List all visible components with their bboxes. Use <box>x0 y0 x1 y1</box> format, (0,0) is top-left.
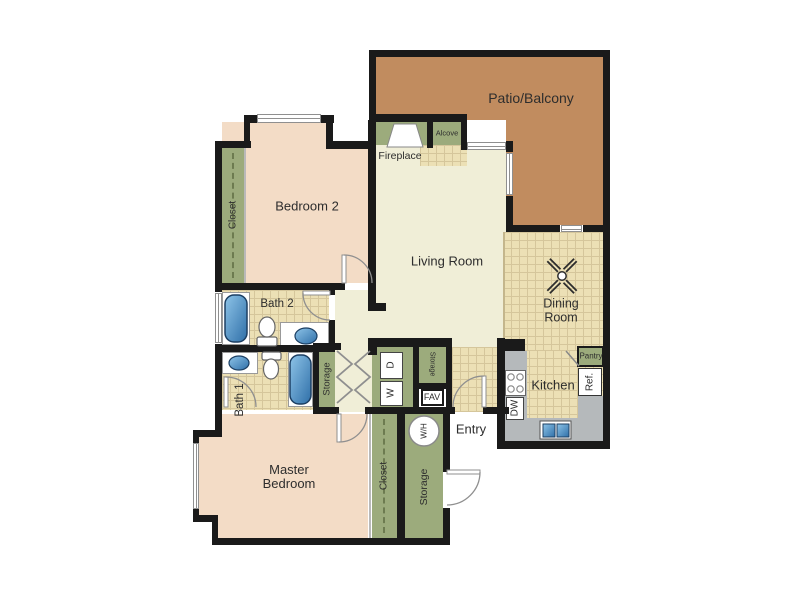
label-patio-balcony: Patio/Balcony <box>488 90 574 106</box>
fireplace-icon <box>387 124 423 147</box>
symbol-overlay <box>0 0 800 600</box>
label-closet-master: Closet <box>379 462 390 490</box>
label-pantry: Pantry <box>579 352 602 361</box>
label-storage-hall: Storage <box>322 362 333 395</box>
label-dining-room: Dining Room <box>536 298 586 325</box>
label-fireplace: Fireplace <box>378 150 421 162</box>
label-living-room: Living Room <box>411 254 483 269</box>
pantry-door <box>566 351 579 366</box>
label-master-bedroom: Master Bedroom <box>249 463 329 491</box>
label-entry: Entry <box>456 422 486 437</box>
stove-icon <box>508 374 523 392</box>
label-dishwasher: DW <box>510 400 521 417</box>
label-washer: W <box>386 388 397 397</box>
bifold-door-icon <box>337 351 370 403</box>
kitchen-sink-icon <box>540 421 571 439</box>
label-bath2: Bath 2 <box>260 298 293 310</box>
label-closet-bedroom2: Closet <box>228 201 239 229</box>
floor-plan: Patio/Balcony Bedroom 2 Living Room Dini… <box>0 0 800 600</box>
label-dryer: D <box>386 361 397 368</box>
label-bedroom2: Bedroom 2 <box>275 199 339 214</box>
label-storage-upper: Storage <box>429 352 436 377</box>
label-fav: FAV <box>424 392 440 402</box>
label-bath1: Bath 1 <box>234 383 246 416</box>
ceiling-fan-icon <box>547 259 576 294</box>
label-storage-entry: Storage <box>418 469 430 506</box>
label-water-heater: W/H <box>420 423 429 439</box>
toilet-icon <box>257 317 281 379</box>
label-kitchen: Kitchen <box>531 378 574 393</box>
label-refrigerator: Ref. <box>585 373 596 391</box>
label-alcove: Alcove <box>436 129 459 138</box>
